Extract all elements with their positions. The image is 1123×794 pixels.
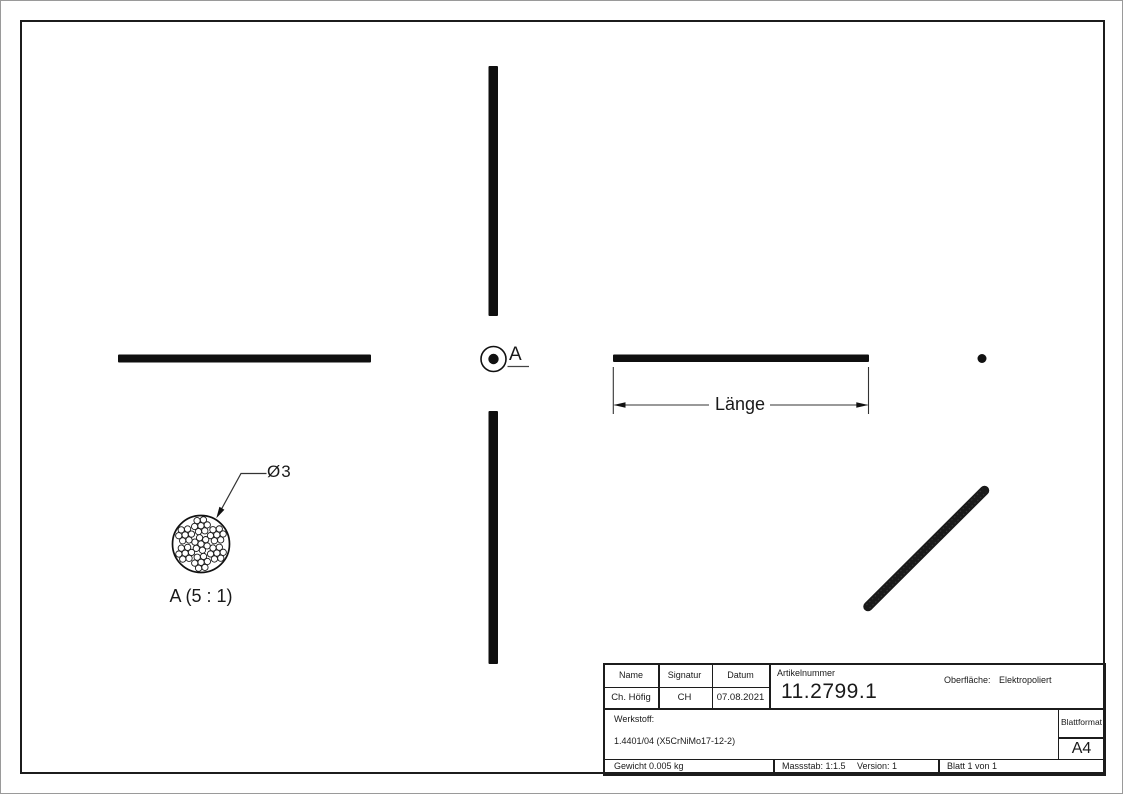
title-block-line	[1058, 737, 1105, 739]
name-header: Name	[604, 671, 658, 680]
diameter-leader-arrow	[216, 507, 224, 519]
title-block-line	[769, 664, 771, 708]
version-value: Version: 1	[857, 762, 897, 771]
dimension-arrow-left	[614, 402, 626, 408]
rope-left-horizontal-view	[118, 355, 371, 363]
dimension-arrow-right	[856, 402, 868, 408]
diameter-dimension-label: Ø3	[267, 463, 292, 480]
sheet-format-value: A4	[1058, 741, 1105, 757]
rope-top-vertical-view	[489, 66, 499, 316]
article-number-value: 11.2799.1	[781, 681, 877, 702]
rope-bottom-vertical-view	[489, 411, 499, 664]
title-block-line	[938, 759, 940, 775]
scale-value: Massstab: 1:1.5	[782, 762, 846, 771]
detail-callout-center-dot	[488, 354, 498, 364]
title-block-line	[773, 759, 775, 775]
date-header: Datum	[712, 671, 769, 680]
length-dimension-label: Länge	[690, 395, 790, 413]
signature-header: Signatur	[658, 671, 711, 680]
title-block-line	[604, 759, 1105, 761]
detail-view-title: A (5 : 1)	[156, 587, 246, 605]
rope-end-view-dot	[978, 354, 987, 363]
title-block-line	[604, 687, 769, 689]
title-block-line	[604, 708, 1105, 710]
detail-callout-label: A	[509, 345, 522, 364]
isometric-rope-view	[866, 489, 986, 608]
sheet-number-value: Blatt 1 von 1	[947, 762, 997, 771]
material-label: Werkstoff:	[614, 715, 654, 724]
diameter-leader-line	[219, 474, 267, 515]
date-value: 07.08.2021	[712, 693, 769, 703]
signature-value: CH	[658, 693, 711, 703]
material-value: 1.4401/04 (X5CrNiMo17-12-2)	[614, 737, 735, 746]
name-value: Ch. Höfig	[604, 693, 658, 703]
sheet-format-label: Blattformat	[1058, 718, 1105, 727]
weight-value: Gewicht 0.005 kg	[614, 762, 684, 771]
rope-right-horizontal-view	[613, 355, 869, 363]
surface-label: Oberfläche:	[944, 676, 991, 685]
article-number-label: Artikelnummer	[777, 669, 835, 678]
surface-value: Elektropoliert	[999, 676, 1052, 685]
drawing-sheet: A Länge Ø3 A (5 : 1) Name Signatur Datum…	[0, 0, 1123, 794]
